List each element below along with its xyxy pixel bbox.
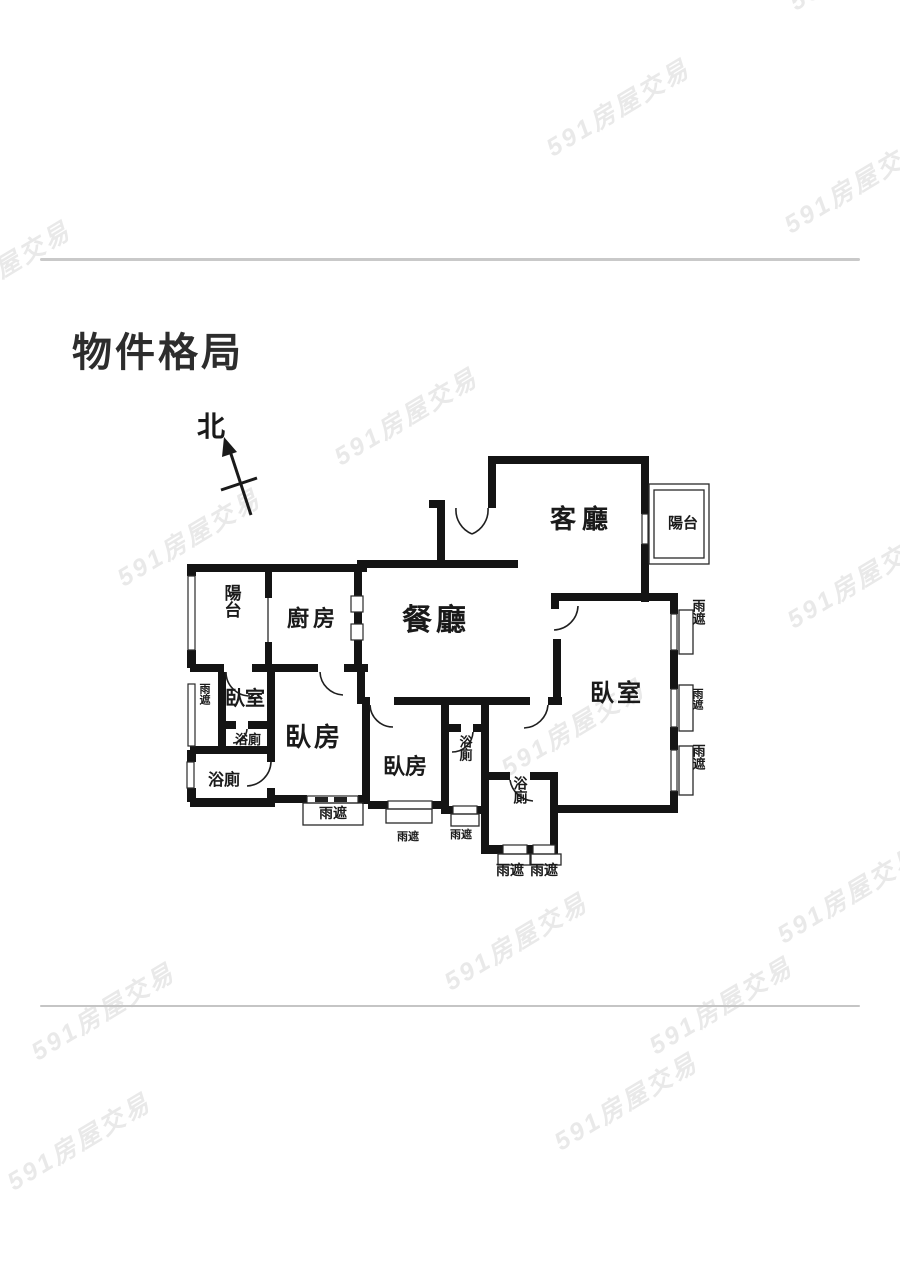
label-balcony-right: 陽台 bbox=[668, 514, 698, 532]
label-awning-bedroom-left: 雨遮 bbox=[319, 805, 347, 822]
label-kitchen: 廚房 bbox=[287, 606, 339, 631]
top-divider bbox=[40, 258, 860, 261]
watermark: 591房屋交易 bbox=[781, 0, 900, 18]
page-title: 物件格局 bbox=[72, 320, 244, 378]
watermark: 591房屋交易 bbox=[769, 836, 900, 951]
label-awning-bath-bottom-2: 雨遮 bbox=[530, 862, 558, 879]
label-bedroom-left: 臥房 bbox=[285, 723, 343, 752]
kitchen-shaft bbox=[351, 624, 363, 640]
window-living-balcony bbox=[642, 514, 648, 544]
watermark: 591房屋交易 bbox=[546, 1043, 704, 1158]
window-bedroom-left bbox=[307, 796, 358, 803]
north-arrow-head bbox=[222, 437, 237, 457]
label-bedroom-small: 臥室 bbox=[225, 686, 265, 710]
door-master-bedroom bbox=[554, 606, 578, 630]
label-living-room: 客廳 bbox=[550, 504, 614, 534]
window-balcony-left bbox=[188, 576, 195, 650]
label-bathroom-bottom: 浴廁 bbox=[512, 775, 528, 805]
window-master-3 bbox=[671, 750, 677, 791]
label-balcony-left: 陽台 bbox=[222, 584, 241, 619]
watermark: 591房屋交易 bbox=[779, 521, 900, 636]
window-bedroom-bottom bbox=[388, 801, 432, 809]
label-bathroom-middle: 浴廁 bbox=[458, 734, 473, 762]
label-dining-room: 餐廳 bbox=[402, 603, 470, 637]
door-entry-left bbox=[456, 508, 472, 534]
watermark: 591房屋交易 bbox=[0, 211, 77, 326]
awning-box-bath-middle bbox=[451, 814, 479, 826]
property-layout-page: 物件格局 591房屋交易 591房屋交易 591房屋交易 591房屋交易 591… bbox=[0, 0, 900, 1273]
window-awning-strip bbox=[188, 684, 195, 746]
label-awning-right-2: 雨遮 bbox=[691, 688, 704, 711]
label-awning-bath-middle: 雨遮 bbox=[450, 827, 472, 841]
awning-box-bedroom-bottom bbox=[386, 809, 432, 823]
window-master-1 bbox=[671, 614, 677, 650]
window-bath-middle bbox=[453, 806, 477, 814]
floor-plan: 北 bbox=[170, 395, 720, 890]
label-awning-right-3: 雨遮 bbox=[691, 744, 706, 771]
north-label: 北 bbox=[197, 411, 225, 443]
watermark: 591房屋交易 bbox=[538, 49, 696, 164]
bottom-divider bbox=[40, 1005, 860, 1007]
label-awning-right-1: 雨遮 bbox=[691, 599, 706, 626]
window-master-2 bbox=[671, 689, 677, 727]
label-awning-strip: 雨遮 bbox=[198, 683, 211, 706]
door-hallway bbox=[524, 705, 548, 728]
label-bathroom-left: 浴廁 bbox=[208, 770, 240, 789]
door-bedroom-left bbox=[320, 672, 343, 695]
door-bath-left bbox=[247, 762, 271, 786]
label-bedroom-bottom: 臥房 bbox=[383, 754, 427, 779]
door-entry-right bbox=[472, 508, 488, 534]
label-bedroom-master: 臥室 bbox=[590, 679, 644, 707]
window-bath-bottom-2 bbox=[533, 845, 555, 854]
window-bath-bottom-1 bbox=[503, 845, 527, 854]
label-awning-bedroom-bottom: 雨遮 bbox=[397, 829, 419, 843]
window-bath-left bbox=[187, 762, 194, 788]
watermark: 591房屋交易 bbox=[23, 953, 181, 1068]
label-awning-bath-bottom-1: 雨遮 bbox=[496, 862, 524, 879]
watermark: 591房屋交易 bbox=[0, 1083, 157, 1198]
watermark: 591房屋交易 bbox=[776, 126, 900, 241]
door-bedroom-bottom bbox=[370, 705, 393, 727]
kitchen-shaft bbox=[351, 596, 363, 612]
north-compass: 北 bbox=[197, 411, 257, 515]
label-bathroom-small: 浴廁 bbox=[235, 732, 261, 747]
watermark: 591房屋交易 bbox=[436, 883, 594, 998]
